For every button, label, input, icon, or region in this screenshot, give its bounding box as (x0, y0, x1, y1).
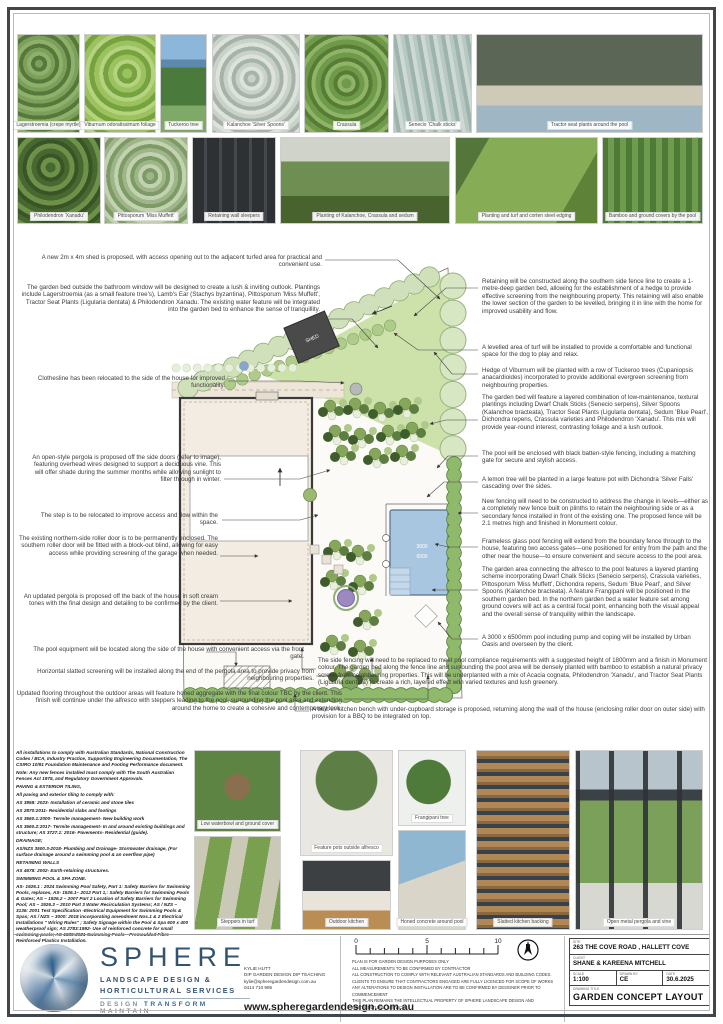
compliance-line: AS 3660.1:2000- Termite management- New … (16, 816, 190, 822)
clothesline-symbol (350, 383, 362, 395)
scale-tick-10: 10 (494, 938, 502, 945)
annotation-pool-equipment: The pool equipment will be located along… (22, 646, 304, 661)
drawn-by-cell: DRAWN BY CE (617, 971, 664, 986)
drawn-by-value: CE (620, 976, 660, 985)
compliance-line: Note: Any new fences installed must comp… (16, 770, 190, 782)
date-value: 30.6.2025 (666, 976, 706, 985)
annotation-step: The step is to be relocated to improve a… (38, 512, 218, 527)
tagline-design: DESIGN (100, 1001, 140, 1008)
note-line: THIS PLAN REMAINS THE INTELLECTUAL PROPE… (352, 998, 557, 1011)
brand-rule (100, 998, 250, 999)
annotation-pool-install: A 3000 x 6500mm pool including pump and … (482, 634, 706, 649)
compliance-line: AS 4678: 2002- Earth-retaining structure… (16, 868, 190, 874)
annotation-roller-door: The existing northern-side roller door i… (18, 535, 218, 557)
contact-details: KYLIE HUTT DIP GARDEN DESIGN DIP TEACHIN… (244, 966, 325, 992)
compliance-line: All installations to comply with Austral… (16, 750, 190, 768)
note-line: ALL CONSTRUCTION TO COMPLY WITH RELEVANT… (352, 972, 557, 979)
note-line: ANY ALTERATIONS TO DESIGN INSTALLATION A… (352, 985, 557, 998)
annotation-open-pergola: An open-style pergola is proposed off th… (28, 454, 221, 484)
title-block-drawing-title: DRAWING TITLE GARDEN CONCEPT LAYOUT (570, 986, 709, 1005)
north-arrow-icon: N (516, 938, 540, 967)
compliance-line: AS/NZS 3500.3-2018- Plumbing and Drainag… (16, 846, 190, 858)
footer-column-divider (564, 936, 565, 1022)
pool-width-label: 3000 (416, 544, 427, 550)
tagline-maintain: MAINTAIN (100, 1008, 151, 1015)
scale-tick-5: 5 (425, 938, 429, 945)
title-block-meta: SCALE 1:100 DRAWN BY CE DATE 30.6.2025 (570, 971, 709, 987)
compliance-standards: All installations to comply with Austral… (16, 750, 190, 946)
compliance-heading: RETAINING WALLS (16, 860, 190, 866)
water-feature-existing-symbol (240, 362, 249, 371)
client-value: SHANE & KAREENA MITCHELL (573, 960, 706, 969)
scale-cell: SCALE 1:100 (570, 971, 617, 986)
compliance-line: AS 3958: 2023- Installation of ceramic a… (16, 800, 190, 806)
tagline-transform: TRANSFORM (144, 1001, 208, 1008)
compliance-line: AS 2870:2011- Residential slabs and foot… (16, 808, 190, 814)
lemon-tree-pot-symbol (304, 489, 317, 502)
brand-name: SPHERE (100, 942, 250, 973)
annotation-side-fencing: The side fencing will need to be replace… (318, 657, 710, 687)
compliance-line: AS- 1926.1 : 2024 Swimming Pool Safety, … (16, 884, 190, 944)
annotation-viburnum-hedge: Hedge of Viburnum will be planted with a… (482, 367, 706, 389)
annotation-kitchen-bench: A built-in kitchen bench with under-cupb… (312, 706, 708, 721)
annotation-alfresco-garden: The garden area connecting the alfresco … (482, 566, 710, 618)
date-cell: DATE 30.6.2025 (663, 971, 709, 986)
title-block-site: SITE 263 THE COVE ROAD , HALLETT COVE (570, 939, 709, 955)
annotation-lemon-tree: A lemon tree will be planted in a large … (482, 476, 706, 491)
svg-text:N: N (525, 944, 530, 951)
annotation-shed: A new 2m x 4m shed is proposed, with acc… (30, 254, 322, 269)
site-value: 263 THE COVE ROAD , HALLETT COVE (573, 944, 706, 953)
contact-qualification: DIP GARDEN DESIGN DIP TEACHING (244, 972, 325, 978)
annotation-layered-garden-bed: The garden bed will feature a layered co… (482, 394, 710, 431)
compliance-heading: PAVING & EXTERIOR TILING, (16, 784, 190, 790)
compliance-line: All paving and exterior tiling to comply… (16, 792, 190, 798)
footer-divider (14, 934, 709, 935)
design-sheet: Lagerstroemia (crepe myrtle) Viburnum od… (0, 0, 723, 1024)
pool-gate-symbol (383, 535, 390, 542)
sphere-globe-icon (20, 944, 88, 1012)
brand-subtitle-line1: LANDSCAPE DESIGN & (100, 975, 250, 984)
annotation-bathroom-garden-bed: The garden bed outside the bathroom wind… (18, 284, 320, 314)
drawing-title-value: GARDEN CONCEPT LAYOUT (573, 991, 706, 1004)
title-block: SITE 263 THE COVE ROAD , HALLETT COVE CL… (569, 938, 710, 1006)
annotation-turf: A levelled area of turf will be installe… (482, 344, 706, 359)
brand-tagline: DESIGN TRANSFORM MAINTAIN (100, 1001, 250, 1015)
title-block-client: CLIENT SHANE & KAREENA MITCHELL (570, 955, 709, 971)
pool-gate-symbol (383, 561, 390, 568)
annotation-new-fencing: New fencing will need to be constructed … (482, 498, 708, 528)
annotation-glass-pool-fencing: Frameless glass pool fencing will extend… (482, 538, 708, 560)
annotation-updated-pergola: An updated pergola is proposed off the b… (18, 593, 218, 608)
annotation-batten-fencing: The pool will be enclosed with black bat… (482, 450, 706, 465)
pool-length-label: 6500 (416, 554, 427, 560)
brand-subtitle-line2: HORTICULTURAL SERVICES (100, 986, 250, 995)
annotation-clothesline: Clothesline has been relocated to the si… (20, 375, 225, 390)
contact-phone: 0414 710 985 (244, 985, 325, 991)
compliance-heading: DRAINAGE; (16, 838, 190, 844)
scale-tick-0: 0 (354, 938, 358, 945)
annotation-retaining: Retaining will be constructed along the … (482, 278, 710, 315)
compliance-line: AS 3660.2:2017- Termite management- In a… (16, 824, 190, 836)
annotation-flooring: Updated flooring throughout the outdoor … (16, 690, 342, 712)
scale-value: 1:100 (573, 976, 613, 985)
water-feature-symbol (338, 590, 355, 607)
annotation-slatted-screening: Horizontal slatted screening will be ins… (22, 668, 314, 683)
compliance-heading: SWIMMING POOL & SPA ZONE. (16, 876, 190, 882)
